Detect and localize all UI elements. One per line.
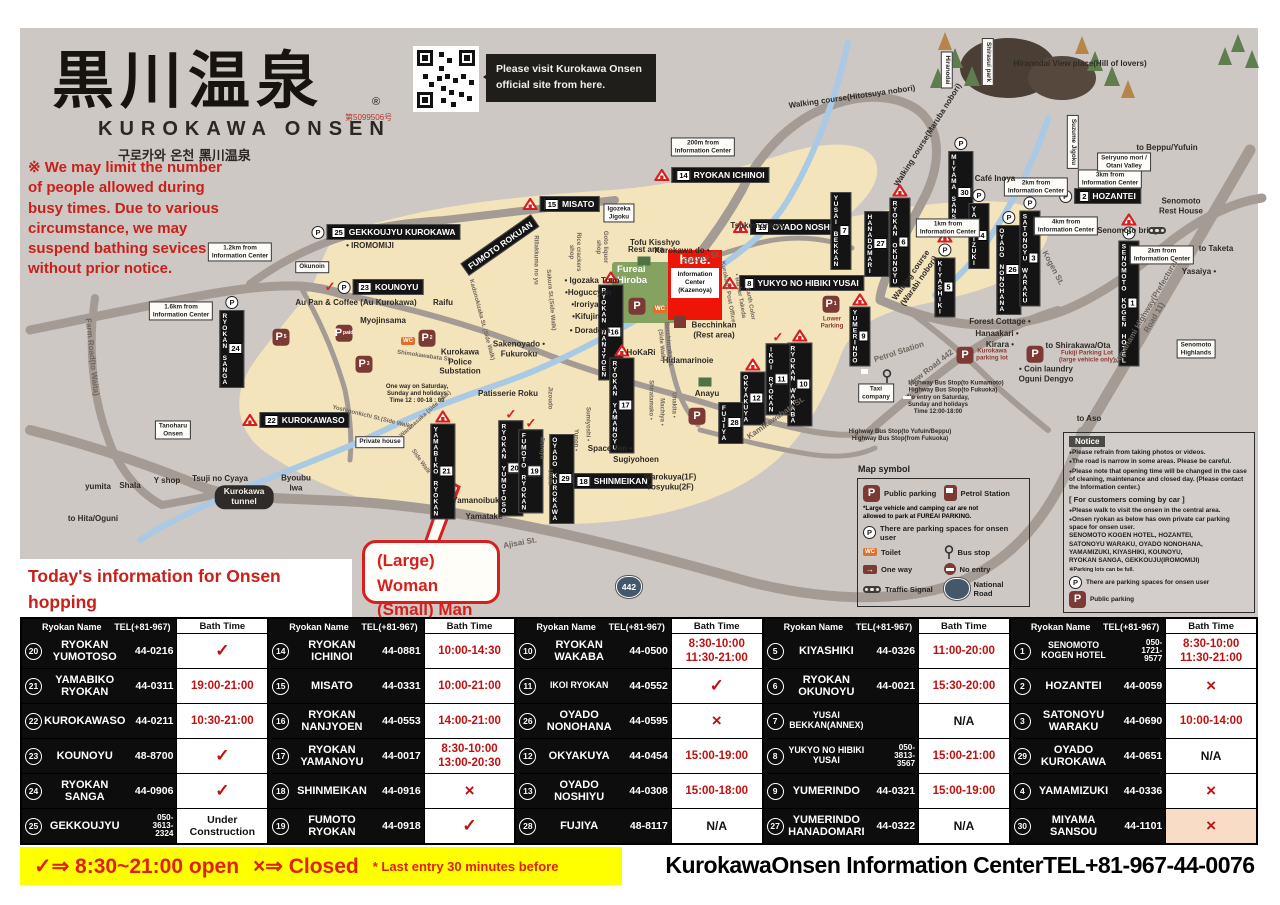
ryokan-name-cell: 27YUMERINDO HANADOMARI44-0322 (764, 809, 918, 843)
map-place-label: Byoubu Iwa (281, 473, 311, 492)
bath-time-cell: Under Construction (176, 809, 267, 843)
bath-time-cell: N/A (918, 704, 1009, 738)
map-street-label: Goto liquor shop (594, 231, 608, 263)
legend-item: Petrol Station (944, 485, 1025, 502)
bath-time-value: 8:30-10:00 11:30-21:00 (1180, 637, 1242, 666)
ryokan-number-badge: 25 (25, 818, 42, 835)
ryokan-name: SATONOYU WARAKU (1033, 709, 1114, 733)
parking-circle-icon: P (311, 226, 324, 239)
table-body: 20RYOKAN YUMOTOSO44-0216✓21YAMABIKO RYOK… (22, 634, 267, 843)
route-442-shield: 442 (616, 576, 642, 598)
ryokan-chip: 27HANADOMARI (864, 211, 889, 277)
map-place-label: No entry on Saturday, Sunday and holiday… (907, 395, 969, 417)
open-rule: ✓⇒ 8:30~21:00 open (34, 854, 239, 879)
table-row: 26OYADO NONOHANA44-0595× (516, 703, 761, 738)
header-tel: TEL(+81-967) (856, 622, 912, 632)
legend-label: Traffic Signal (885, 585, 933, 594)
table-row: 16RYOKAN NANJYOEN44-055314:00-21:00 (269, 703, 514, 738)
national-road-icon (944, 578, 970, 600)
ryokan-name: MIYAMA SANSOU (1033, 814, 1114, 838)
map-ryokan-label: 22KUROKAWASO (242, 412, 349, 428)
legend-item: No entry (944, 563, 1025, 575)
ryokan-number-badge: 29 (1014, 748, 1031, 765)
toilet-icon: WC (653, 297, 667, 315)
legend-label: One way (881, 565, 912, 574)
map-place-label: HoKaRi (627, 348, 656, 358)
ryokan-number: 3 (1028, 252, 1038, 263)
legend-item: WCToilet (863, 545, 944, 560)
parking-suffix: 3 (367, 361, 370, 367)
ryokan-number-badge: 15 (272, 678, 289, 695)
ryokan-name-cell: 11IKOI RYOKAN44-0552 (516, 669, 670, 703)
parking-suffix: 2 (430, 335, 433, 341)
large-woman-small-man-callout: (Large) Woman (Small) Man (362, 540, 500, 604)
bath-time-value: 15:00-19:00 (685, 749, 748, 763)
bath-time-cell: ✓ (424, 809, 515, 843)
bath-time-value: ✓ (462, 816, 476, 836)
ryokan-tel: 48-8700 (127, 751, 173, 762)
ryokan-name: MISATO (291, 680, 372, 692)
ryokan-chip: 5KIYASHIKI (934, 258, 955, 318)
bath-time-cell: 11:00-20:00 (918, 634, 1009, 668)
map-sign: 4km from Information Center (1034, 216, 1098, 235)
bath-time-cell: 8:30-10:00 11:30-21:00 (1165, 634, 1256, 668)
ryokan-roof-icon (242, 414, 257, 426)
map-place-label: Highway Bus Stop(to Yufuin/Beppu) Highwa… (849, 429, 952, 443)
ryokan-name-cell: 18SHINMEIKAN44-0916 (269, 774, 423, 808)
header-ryokan-name: Ryokan Name (42, 622, 102, 632)
table-row: 6RYOKAN OKUNOYU44-002115:30-20:00 (764, 668, 1009, 703)
map-place-label: Rest area (628, 245, 664, 255)
table-header-row: Ryokan NameTEL(+81-967)Bath Time (269, 619, 514, 634)
ryokan-name-cell: 12OKYAKUYA44-0454 (516, 739, 670, 773)
notice-bullet: Please note that opening time will be ch… (1069, 468, 1249, 493)
parking-circle-icon: P (1023, 197, 1036, 210)
map-place-label: Hiranodai View place(Hill of lovers) (1013, 59, 1146, 69)
bath-time-cell: × (1165, 774, 1256, 808)
parking-icon: P5 (273, 327, 290, 346)
today-information: Today's information for Onsen hopping 20… (20, 559, 352, 617)
table-row: 4YAMAMIZUKI44-0336× (1011, 773, 1256, 808)
signal-dot (876, 588, 880, 592)
ryokan-name: FUMOTO RYOKAN (520, 433, 527, 511)
map-place-label: • Coin laundry Oguni Dengyo (1019, 364, 1074, 383)
information-center-contact: KurokawaOnsen Information CenterTEL+81-9… (660, 846, 1260, 884)
notice-box: Notice Please refrain from taking photos… (1063, 432, 1255, 613)
ryokan-chip: 24RYOKAN SANGA (219, 310, 244, 388)
legend-label: National Road (974, 580, 1025, 598)
map-place-label: Sugiyohoen (613, 455, 659, 465)
official-site-callout: Please visit Kurokawa Onsen official sit… (486, 54, 656, 102)
bath-time-cell: ✓ (176, 634, 267, 668)
map-street-label: Yunon • (571, 429, 578, 451)
ryokan-name: KUROKAWASO (282, 415, 345, 425)
ryokan-name-cell: 17RYOKAN YAMANOYU44-0017 (269, 739, 423, 773)
ryokan-name: RYOKAN SANGA (221, 313, 228, 385)
ryokan-name: OYADO NONOHANA (998, 228, 1005, 312)
ryokan-number-badge: 24 (25, 783, 42, 800)
bus-stop-icon (944, 545, 954, 560)
table-header-row: Ryokan NameTEL(+81-967)Bath Time (764, 619, 1009, 634)
bath-time-cell: 10:00-21:00 (424, 669, 515, 703)
legend-item: Bus stop (944, 545, 1025, 560)
notice-legend-row: PPublic parking (1069, 591, 1249, 608)
ryokan-tel: 44-0021 (869, 681, 915, 692)
table-row: 27YUMERINDO HANADOMARI44-0322N/A (764, 808, 1009, 843)
map-sign: 1km from Information Center (916, 218, 980, 237)
national-road-icon: 442 (616, 576, 642, 598)
table-row: 5KIYASHIKI44-032611:00-20:00 (764, 634, 1009, 668)
legend-item: PPublic parking (863, 485, 944, 502)
bath-time-value: ✓ (215, 781, 229, 801)
map-sign: Igozeka Jigoku (603, 203, 634, 222)
map-sign: Private house (355, 436, 404, 448)
parking-icon: Ppaid (336, 324, 353, 341)
ryokan-name-cell: 20RYOKAN YUMOTOSO44-0216 (22, 634, 176, 668)
ryokan-number-badge: 30 (1014, 818, 1031, 835)
ryokan-number-badge: 8 (767, 748, 784, 765)
ryokan-number: 11 (775, 373, 789, 384)
header-tel: TEL(+81-967) (114, 622, 170, 632)
one-way-icon: → (863, 565, 877, 574)
map-place-label: to Taketa (1199, 244, 1234, 254)
bath-time-value: 8:30-10:00 13:00-20:30 (438, 742, 501, 771)
title-romaji: KUROKAWA ONSEN (98, 118, 391, 141)
ryokan-name: HOZANTEI (1033, 680, 1114, 692)
map-sign: 1.6km from Information Center (149, 301, 213, 320)
ryokan-name: YUKYO NO HIBIKI YUSAI (757, 278, 858, 288)
ryokan-name-cell: 30MIYAMA SANSOU44-1101 (1011, 809, 1165, 843)
ryokan-name: YUMERINDO HANADOMARI (786, 814, 867, 838)
map-ryokan-label: P3SATONOYU WARAKU (1019, 184, 1040, 307)
ryokan-name-cell: 15MISATO44-0331 (269, 669, 423, 703)
map-street-label: Machiya • (657, 398, 664, 425)
ryokan-number: 21 (439, 465, 453, 476)
bath-time-cell: 15:30-20:00 (918, 669, 1009, 703)
ryokan-number: 24 (228, 343, 242, 354)
bath-time-value: ✓ (215, 746, 229, 766)
parking-icon: P3 (356, 354, 373, 373)
bath-time-cell: 14:00-21:00 (424, 704, 515, 738)
ryokan-name: RYOKAN OKUNOYU (786, 674, 867, 698)
header-bath-time: Bath Time (918, 619, 1009, 634)
rest-area-square (638, 257, 651, 266)
ryokan-name: FUJIYA (720, 405, 727, 441)
parking-icon: P3 (356, 355, 373, 372)
ryokan-name-cell: 8YUKYO NO HIBIKI YUSAI050- 3813- 3567 (764, 739, 918, 773)
ryokan-name-cell: 9YUMERINDO44-0321 (764, 774, 918, 808)
ryokan-name: KOUNOYU (44, 750, 125, 762)
ryokan-tel: 44-0322 (869, 821, 915, 832)
ryokan-name: YUMERINDO (786, 785, 867, 797)
header-ryokan-name: Ryokan Name (784, 622, 844, 632)
ryokan-name: IKOI RYOKAN (768, 347, 775, 413)
ryokan-name-cell: 28FUJIYA48-8117 (516, 809, 670, 843)
ryokan-name-cell: 29OYADO KUROKAWA44-0651 (1011, 739, 1165, 773)
ryokan-name-cell: 24RYOKAN SANGA44-0906 (22, 774, 176, 808)
ryokan-name: YAMABIKO RYOKAN (432, 427, 439, 517)
parking-icon: P (629, 296, 646, 315)
table-row: 21YAMABIKO RYOKAN44-031119:00-21:00 (22, 668, 267, 703)
rest-area-square (699, 378, 712, 387)
ryokan-name: KIYASHIKI (936, 261, 943, 315)
traffic-signal-icon (863, 586, 881, 593)
bath-time-cell: × (424, 774, 515, 808)
bath-time-value: × (1206, 816, 1216, 836)
ryokan-number: 28 (727, 417, 741, 428)
map-street-label: Rillakkuma no yu (531, 235, 538, 284)
ryokan-tel: 44-0552 (622, 681, 668, 692)
ryokan-name-cell: 6RYOKAN OKUNOYU44-0021 (764, 669, 918, 703)
bath-time-value: 15:00-18:00 (685, 784, 748, 798)
parking-icon: P1 (823, 294, 840, 313)
table-row: 23KOUNOYU48-8700✓ (22, 738, 267, 773)
ryokan-name: OYADO KUROKAWA (1033, 744, 1114, 768)
map-ryokan-label: 12OKYAKUYA (740, 359, 765, 426)
table-header-row: Ryokan NameTEL(+81-967)Bath Time (516, 619, 761, 634)
signal-dot (1155, 229, 1159, 233)
map-ryokan-label: ✓19FUMOTO RYOKAN (518, 418, 543, 513)
notice-car-bullet: Please walk to visit the onsen in the ce… (1069, 507, 1249, 515)
ryokan-number-badge: 27 (767, 818, 784, 835)
map-sign: 200m from Information Center (671, 137, 735, 156)
qr-code (413, 46, 479, 112)
ryokan-number: 23 (358, 282, 372, 293)
table-group: Ryokan NameTEL(+81-967)Bath Time20RYOKAN… (22, 619, 267, 843)
notice-fine-print: ※Parking lots can be full. (1069, 567, 1249, 574)
table-row: 12OKYAKUYA44-045415:00-19:00 (516, 738, 761, 773)
ryokan-number: 15 (545, 199, 559, 210)
ryokan-number-badge: 10 (519, 643, 536, 660)
map-parking-note: Lower Parking (821, 316, 844, 331)
bath-time-value: ✓ (710, 676, 724, 696)
ryokan-chip: 22KUROKAWASO (259, 412, 349, 428)
bath-time-cell: 19:00-21:00 (176, 669, 267, 703)
ryokan-tel: 44-0308 (622, 786, 668, 797)
qr-pattern (413, 46, 479, 112)
bath-time-value: N/A (954, 714, 975, 728)
traffic-signal-icon (1148, 227, 1166, 234)
header-bath-time: Bath Time (424, 619, 515, 634)
ryokan-number: 29 (558, 473, 572, 484)
building-square (674, 316, 686, 328)
ryokan-number: 2 (1079, 191, 1089, 202)
map-place-label: to Aso (1077, 414, 1102, 424)
ryokan-tel: 050- 1721- 9577 (1116, 639, 1162, 664)
map-place-label: •Hoguccyan (565, 288, 611, 298)
bath-time-cell: × (1165, 809, 1256, 843)
map-ryokan-label: 14RYOKAN ICHINOI (654, 167, 769, 183)
bath-time-value: × (1206, 781, 1216, 801)
toilet-icon: WC (863, 548, 877, 556)
map-street-label: Ufufu (545, 469, 552, 485)
ryokan-number: 9 (858, 330, 868, 341)
ryokan-tel: 44-0331 (375, 681, 421, 692)
notice-car-header: [ For customers coming by car ] (1069, 495, 1249, 505)
ryokan-number-badge: 21 (25, 678, 42, 695)
legend-label: Toilet (881, 548, 901, 557)
map-place-label: yumita (85, 482, 111, 492)
table-row: 29OYADO KUROKAWA44-0651N/A (1011, 738, 1256, 773)
map-place-label: Anayu (695, 389, 719, 399)
table-row: 17RYOKAN YAMANOYU44-00178:30-10:00 13:00… (269, 738, 514, 773)
table-row: 7YUSAI BEKKAN(ANNEX)N/A (764, 703, 1009, 738)
ryokan-tel: 44-1101 (1116, 821, 1162, 832)
check-icon: ✓ (506, 409, 517, 419)
bath-time-value: × (465, 781, 475, 801)
header-bath-time: Bath Time (176, 619, 267, 634)
map-sign: Tanoharu Onsen (155, 420, 191, 439)
table-body: 14RYOKAN ICHINOI44-088110:00-14:3015MISA… (269, 634, 514, 843)
table-header-row: Ryokan NameTEL(+81-967)Bath Time (1011, 619, 1256, 634)
signal-dot (1161, 229, 1165, 233)
ryokan-tel: 44-0595 (622, 716, 668, 727)
ryokan-number: 7 (839, 225, 849, 236)
ryokan-number-badge: 12 (519, 748, 536, 765)
map-place-label: to Beppu/Yufuin (1136, 143, 1197, 153)
ryokan-tel: 44-0553 (375, 716, 421, 727)
ryokan-number: 27 (873, 238, 887, 249)
map-place-label: Y shop (154, 476, 181, 486)
notice-bullet: The road is narrow in some areas. Please… (1069, 458, 1249, 466)
table-row: 14RYOKAN ICHINOI44-088110:00-14:30 (269, 634, 514, 668)
table-row: 3SATONOYU WARAKU44-069010:00-14:00 (1011, 703, 1256, 738)
ryokan-number: 6 (898, 236, 908, 247)
title-calligraphy: 黒川温泉 (52, 30, 324, 120)
parking-icon: P (689, 407, 706, 424)
bath-time-cell: 8:30-10:00 11:30-21:00 (671, 634, 762, 668)
signal-dot (870, 588, 874, 592)
map-place-label: Forest Cottage • (969, 317, 1030, 327)
parking-circle-icon: P (938, 244, 951, 257)
toilet-icon: WC (401, 337, 415, 345)
ryokan-name: RYOKAN YUMOTOSO (44, 639, 125, 663)
ryokan-number: 26 (1005, 264, 1019, 275)
ryokan-number-badge: 17 (272, 748, 289, 765)
petrol-station-icon (944, 485, 957, 501)
map-place-label: Tsukemonoya (730, 221, 783, 231)
map-ryokan-label: P2HOZANTEI (1059, 188, 1141, 204)
ryokan-tel: 44-0321 (869, 786, 915, 797)
ryokan-number-badge: 14 (272, 643, 289, 660)
ryokan-number-badge: 23 (25, 748, 42, 765)
map-parking-note: Fukiji Parking Lot (large vehicle only) (1059, 350, 1115, 365)
table-row: 24RYOKAN SANGA44-0906✓ (22, 773, 267, 808)
ryokan-chip: 14RYOKAN ICHINOI (671, 167, 769, 183)
header-ryokan-name-tel: Ryokan NameTEL(+81-967) (516, 619, 670, 634)
ryokan-chip: 8YUKYO NO HIBIKI YUSAI (739, 275, 864, 291)
bath-time-value: 8:30-10:00 11:30-21:00 (686, 637, 748, 666)
ryokan-number: 19 (527, 465, 541, 476)
ryokan-name: GEKKOUJYU KUROKAWA (349, 227, 456, 237)
legend-label: There are parking spaces for onsen user (880, 524, 1024, 542)
map-sign: Okunoin (295, 261, 329, 273)
header-tel: TEL(+81-967) (361, 622, 417, 632)
ryokan-name: OKYAKUYA (538, 750, 619, 762)
ryokan-tel: 44-0017 (375, 751, 421, 762)
ryokan-tel: 44-0326 (869, 646, 915, 657)
map-ryokan-label: P24RYOKAN SANGA (219, 296, 244, 388)
map-sign: Suzume Jigoku (1067, 115, 1079, 169)
table-group: Ryokan NameTEL(+81-967)Bath Time14RYOKAN… (267, 619, 514, 843)
bath-time-value: 10:00-14:30 (438, 644, 501, 658)
ryokan-name: RYOKAN YAMANOYU (611, 361, 618, 451)
toilet-icon: WC (401, 329, 415, 347)
ryokan-tel: 050- 3613- 2324 (127, 814, 173, 839)
ryokan-name-cell: 16RYOKAN NANJYOEN44-0553 (269, 704, 423, 738)
no-entry-icon (944, 563, 956, 575)
ryokan-chip: 23KOUNOYU (353, 279, 424, 295)
legend-label: No entry (960, 565, 991, 574)
ryokan-name: KOUNOYU (375, 282, 418, 292)
ryokan-roof-icon (746, 359, 761, 371)
table-group: Ryokan NameTEL(+81-967)Bath Time1SENOMOT… (1009, 619, 1256, 843)
ryokan-tel: 44-0454 (622, 751, 668, 762)
ryokan-tel: 050- 3813- 3567 (869, 744, 915, 769)
ryokan-number: 14 (676, 170, 690, 181)
map-ryokan-label: P26OYADO NONOHANA (996, 211, 1021, 315)
parking-icon: P (957, 346, 974, 363)
ryokan-tel: 44-0500 (622, 646, 668, 657)
map-place-label: Space Ten • (588, 444, 632, 454)
ryokan-name-cell: 19FUMOTO RYOKAN44-0918 (269, 809, 423, 843)
open-closed-legend-bar: ✓⇒ 8:30~21:00 open ×⇒ Closed * Last entr… (20, 847, 622, 885)
map-place-label: •Iroriya (571, 300, 598, 310)
table-body: 1SENOMOTO KOGEN HOTEL050- 1721- 95778:30… (1011, 634, 1256, 843)
ryokan-name: RYOKAN ICHINOI (694, 170, 765, 180)
ryokan-number-badge: 9 (767, 783, 784, 800)
today-line1: Today's information for Onsen hopping (28, 563, 352, 616)
ryokan-name: RYOKAN NANJYOEN (291, 709, 372, 733)
toilet-icon: WC (653, 305, 667, 313)
map-place-label: Highway Bus Stop(to Fukuoka) (909, 387, 998, 394)
parking-icon: P (957, 345, 974, 364)
map-street-label: Shiratamako • (646, 380, 653, 420)
ryokan-name: RYOKAN WAKABA (538, 639, 619, 663)
ryokan-tel: 44-0881 (375, 646, 421, 657)
bath-time-cell: N/A (671, 809, 762, 843)
ryokan-chip: 17RYOKAN YAMANOYU (609, 358, 634, 454)
notice-legend-row: PThere are parking spaces for onsen user (1069, 576, 1249, 589)
header-ryokan-name-tel: Ryokan NameTEL(+81-967) (1011, 619, 1165, 634)
map-ryokan-label: 17RYOKAN YAMANOYU (609, 345, 634, 454)
information-center-label: Information Center (Kazenoya) (671, 268, 719, 298)
header-tel: TEL(+81-967) (609, 622, 665, 632)
ryokan-chip: 12OKYAKUYA (740, 372, 765, 426)
map-street-label: Sumiyoshi • (583, 407, 590, 441)
map-place-label: Senomoto Rest House (1159, 196, 1203, 215)
ryokan-roof-icon (793, 330, 808, 342)
ryokan-number-badge: 1 (1014, 643, 1031, 660)
map-ryokan-label: 15MISATO (523, 196, 600, 212)
table-row: 15MISATO44-033110:00-21:00 (269, 668, 514, 703)
map-ryokan-label: ✓P23KOUNOYU (325, 279, 424, 295)
ryokan-name: IKOI RYOKAN (538, 681, 619, 691)
ryokan-chip: 26OYADO NONOHANA (996, 225, 1021, 315)
bus-stop-icon (882, 371, 892, 388)
map-ryokan-label: P25GEKKOUJYU KUROKAWA (311, 224, 460, 240)
ryokan-chip: 25GEKKOUJYU KUROKAWA (326, 224, 460, 240)
ryokan-name: FUMOTO RYOKAN (291, 814, 372, 838)
ryokan-number-badge: 7 (767, 713, 784, 730)
parking-icon: P (1069, 591, 1086, 608)
ryokan-number: 22 (264, 415, 278, 426)
ryokan-name: MISATO (562, 199, 594, 209)
tunnel-label: Kurokawa tunnel (215, 485, 274, 509)
ryokan-name: OYADO NOSHIYU (538, 779, 619, 803)
parking-icon: P (1027, 344, 1044, 363)
ryokan-roof-icon (436, 411, 451, 423)
